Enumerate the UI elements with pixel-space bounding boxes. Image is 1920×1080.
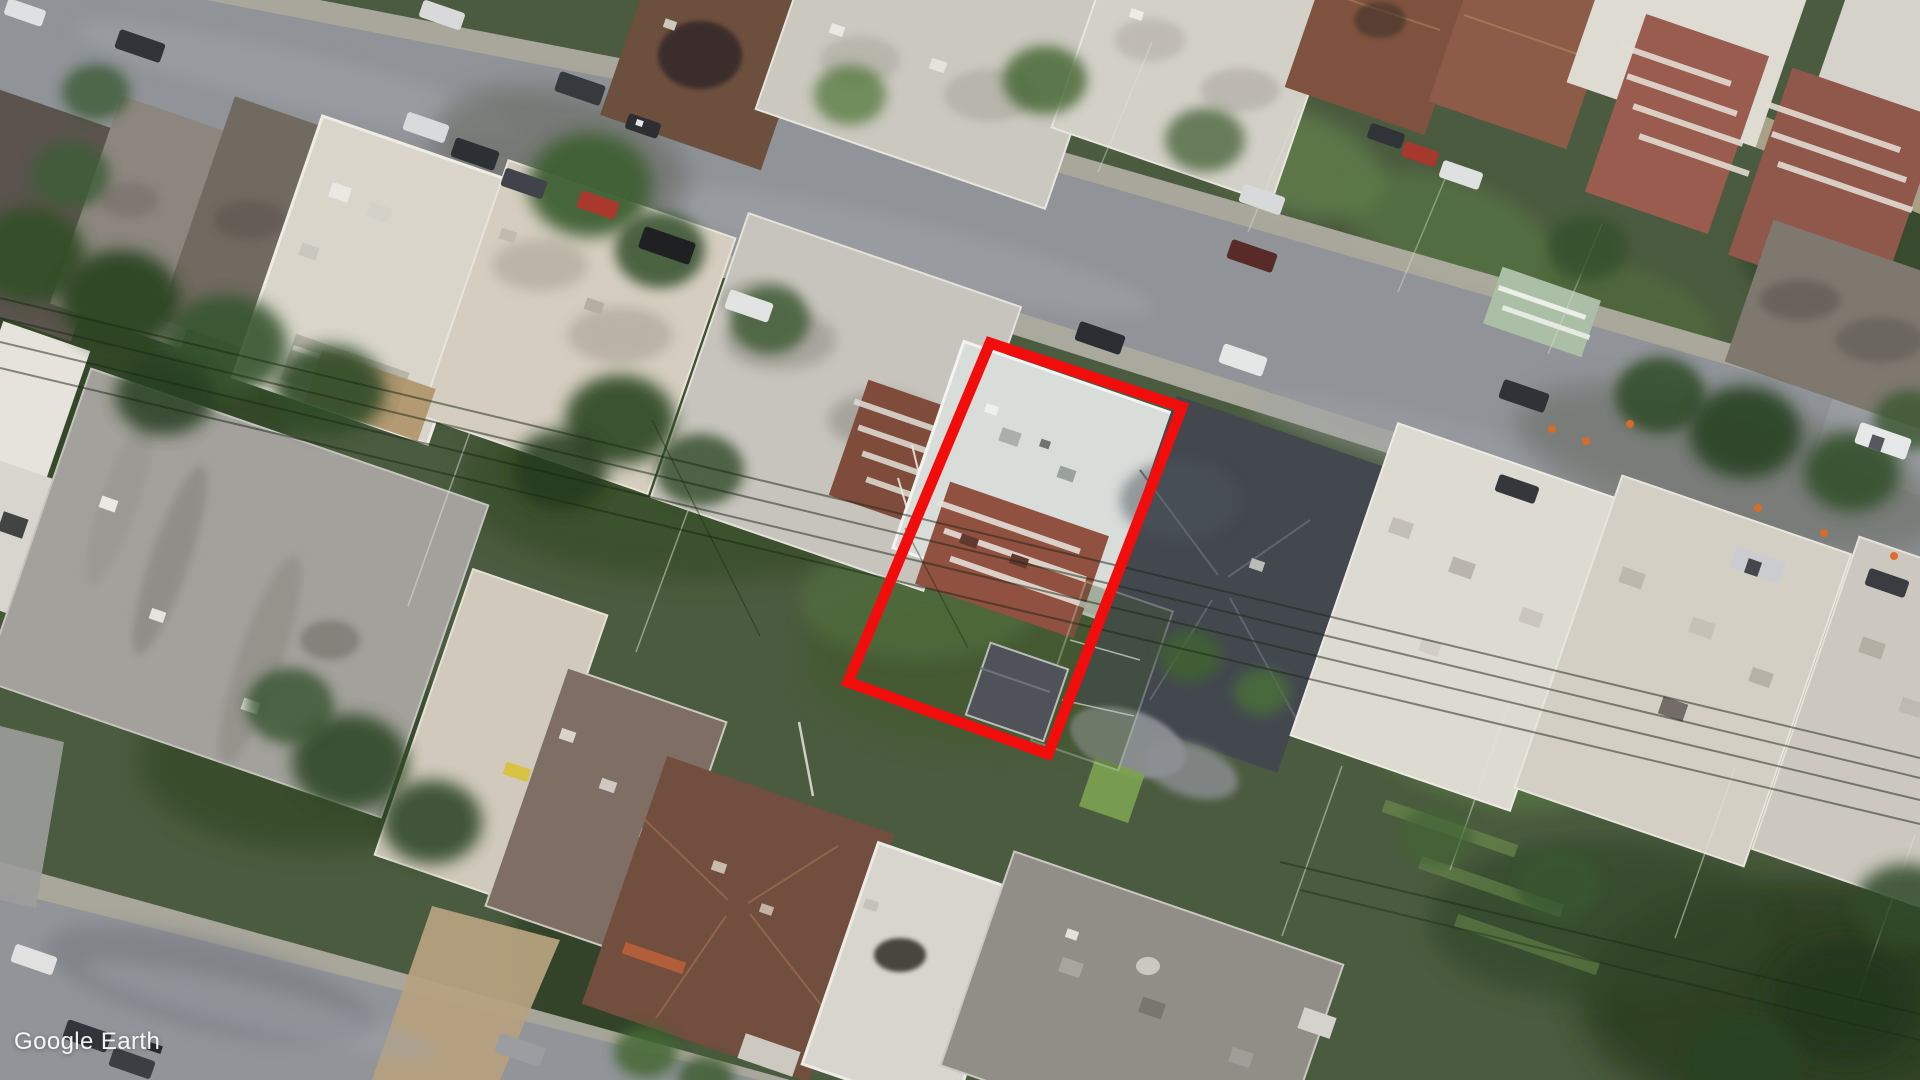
aerial-imagery [0, 0, 1920, 1080]
atmosphere-haze [0, 0, 1920, 1080]
google-earth-watermark: Google Earth [14, 1028, 160, 1056]
google-earth-viewport[interactable]: Google Earth [0, 0, 1920, 1080]
